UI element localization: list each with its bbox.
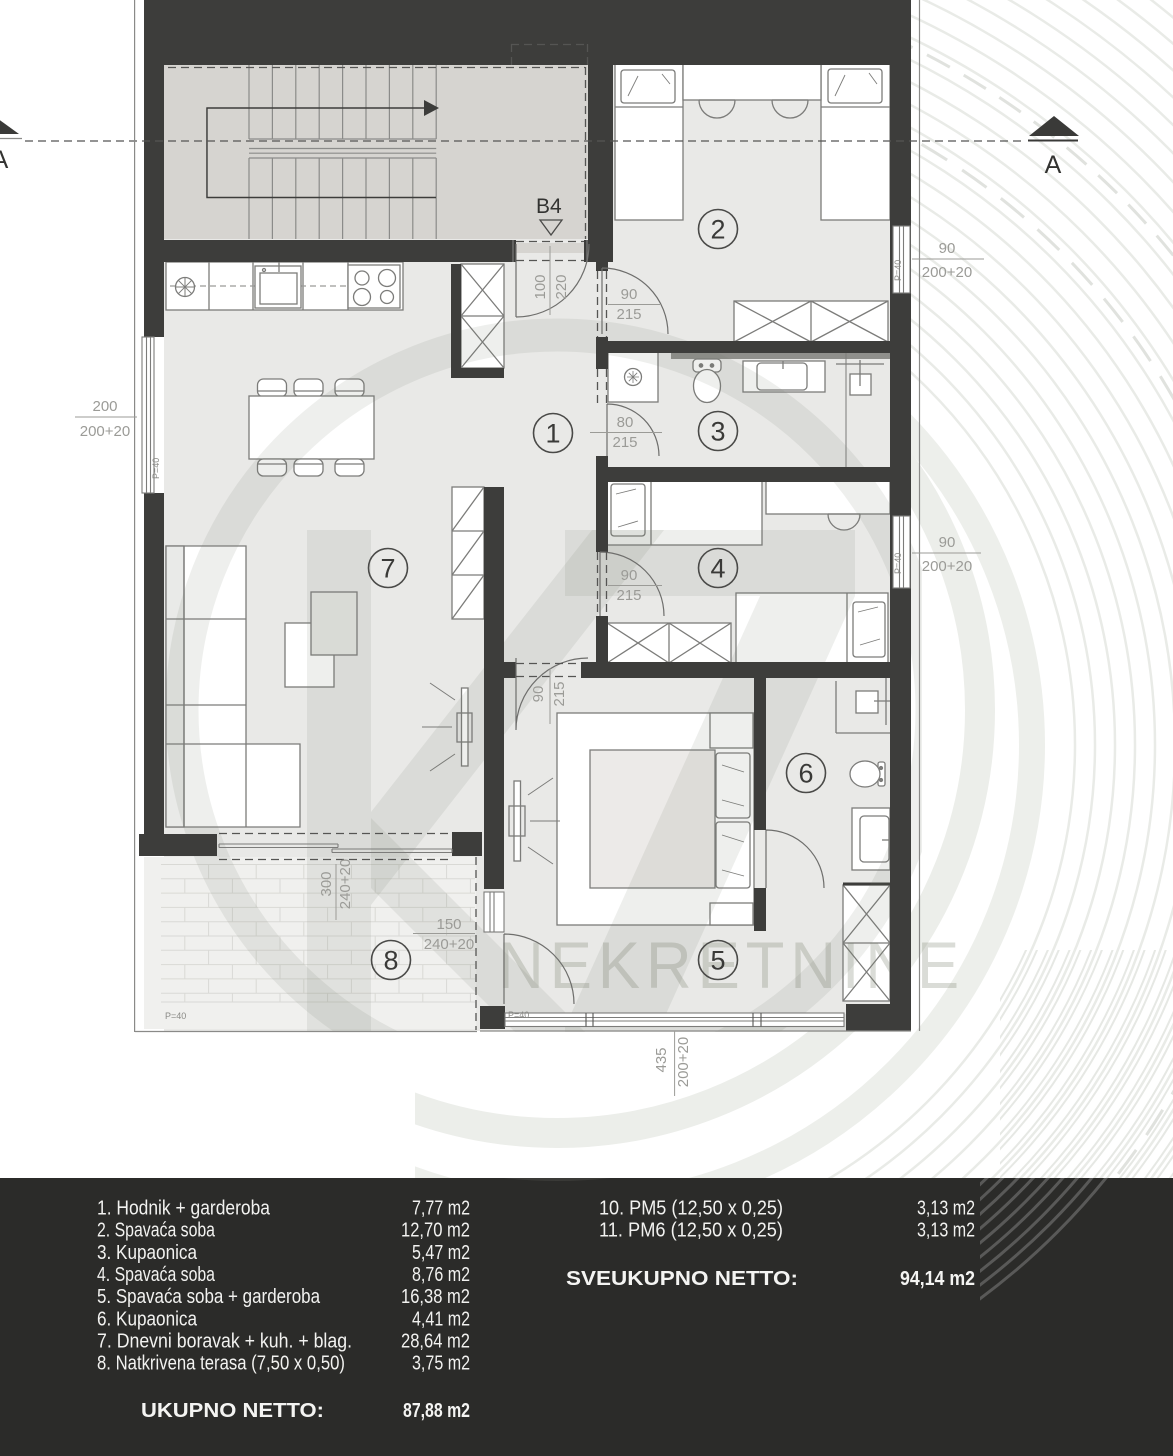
svg-text:3,13 m2: 3,13 m2 xyxy=(917,1220,975,1242)
svg-text:90: 90 xyxy=(621,567,638,584)
svg-text:5: 5 xyxy=(710,946,725,976)
svg-text:4: 4 xyxy=(710,554,725,584)
svg-text:200+20: 200+20 xyxy=(675,1037,692,1087)
svg-text:2: 2 xyxy=(710,215,725,245)
svg-text:7: 7 xyxy=(380,554,395,584)
svg-text:12,70 m2: 12,70 m2 xyxy=(401,1220,470,1242)
svg-text:10. PM5 (12,50 x 0,25): 10. PM5 (12,50 x 0,25) xyxy=(599,1198,783,1220)
svg-text:P=40: P=40 xyxy=(893,260,903,281)
svg-text:240+20: 240+20 xyxy=(424,936,474,953)
svg-text:90: 90 xyxy=(621,286,638,303)
svg-text:240+20: 240+20 xyxy=(337,859,354,909)
svg-text:200+20: 200+20 xyxy=(80,423,130,440)
svg-text:B4: B4 xyxy=(536,195,562,218)
svg-text:87,88 m2: 87,88 m2 xyxy=(403,1400,470,1422)
svg-text:200: 200 xyxy=(92,398,117,415)
svg-text:3,13 m2: 3,13 m2 xyxy=(917,1198,975,1220)
svg-text:215: 215 xyxy=(612,434,637,451)
svg-text:5. Spavaća soba + garderoba: 5. Spavaća soba + garderoba xyxy=(97,1286,321,1308)
svg-text:200+20: 200+20 xyxy=(922,264,972,281)
svg-text:P=40: P=40 xyxy=(151,458,161,479)
svg-text:3,75 m2: 3,75 m2 xyxy=(412,1353,470,1375)
svg-text:2. Spavaća soba: 2. Spavaća soba xyxy=(97,1220,216,1242)
svg-text:100: 100 xyxy=(532,274,549,299)
svg-text:1. Hodnik + garderoba: 1. Hodnik + garderoba xyxy=(97,1198,271,1220)
svg-text:90: 90 xyxy=(530,686,547,703)
svg-text:UKUPNO NETTO:: UKUPNO NETTO: xyxy=(141,1400,324,1422)
svg-text:7. Dnevni boravak + kuh. + bla: 7. Dnevni boravak + kuh. + blag. xyxy=(97,1330,352,1352)
svg-text:150: 150 xyxy=(436,916,461,933)
svg-text:8,76 m2: 8,76 m2 xyxy=(412,1264,470,1286)
svg-text:6. Kupaonica: 6. Kupaonica xyxy=(97,1308,198,1330)
svg-text:8. Natkrivena terasa (7,50 x 0: 8. Natkrivena terasa (7,50 x 0,50) xyxy=(97,1353,345,1375)
svg-text:80: 80 xyxy=(617,414,634,431)
svg-text:215: 215 xyxy=(616,306,641,323)
svg-text:200+20: 200+20 xyxy=(922,558,972,575)
svg-text:1: 1 xyxy=(545,419,560,449)
svg-text:5,47 m2: 5,47 m2 xyxy=(412,1242,470,1264)
svg-text:435: 435 xyxy=(653,1047,670,1072)
svg-text:215: 215 xyxy=(551,681,568,706)
svg-text:6: 6 xyxy=(798,759,813,789)
svg-text:4. Spavaća soba: 4. Spavaća soba xyxy=(97,1264,216,1286)
svg-text:28,64 m2: 28,64 m2 xyxy=(401,1330,470,1352)
svg-text:8: 8 xyxy=(383,946,398,976)
svg-text:94,14 m2: 94,14 m2 xyxy=(900,1268,975,1290)
svg-text:11. PM6 (12,50 x 0,25): 11. PM6 (12,50 x 0,25) xyxy=(599,1220,783,1242)
svg-text:3. Kupaonica: 3. Kupaonica xyxy=(97,1242,198,1264)
svg-text:7,77 m2: 7,77 m2 xyxy=(412,1198,470,1220)
svg-text:3: 3 xyxy=(710,417,725,447)
svg-text:P=40: P=40 xyxy=(508,1010,529,1020)
svg-text:P=40: P=40 xyxy=(893,553,903,574)
svg-text:90: 90 xyxy=(939,534,956,551)
svg-text:SVEUKUPNO NETTO:: SVEUKUPNO NETTO: xyxy=(566,1268,798,1290)
svg-text:A: A xyxy=(1045,151,1062,179)
svg-text:A: A xyxy=(0,146,9,174)
svg-text:220: 220 xyxy=(553,274,570,299)
svg-text:300: 300 xyxy=(318,871,335,896)
svg-text:90: 90 xyxy=(939,240,956,257)
svg-text:4,41 m2: 4,41 m2 xyxy=(412,1308,470,1330)
svg-text:P=40: P=40 xyxy=(165,1011,186,1021)
svg-text:215: 215 xyxy=(616,587,641,604)
svg-text:16,38 m2: 16,38 m2 xyxy=(401,1286,470,1308)
